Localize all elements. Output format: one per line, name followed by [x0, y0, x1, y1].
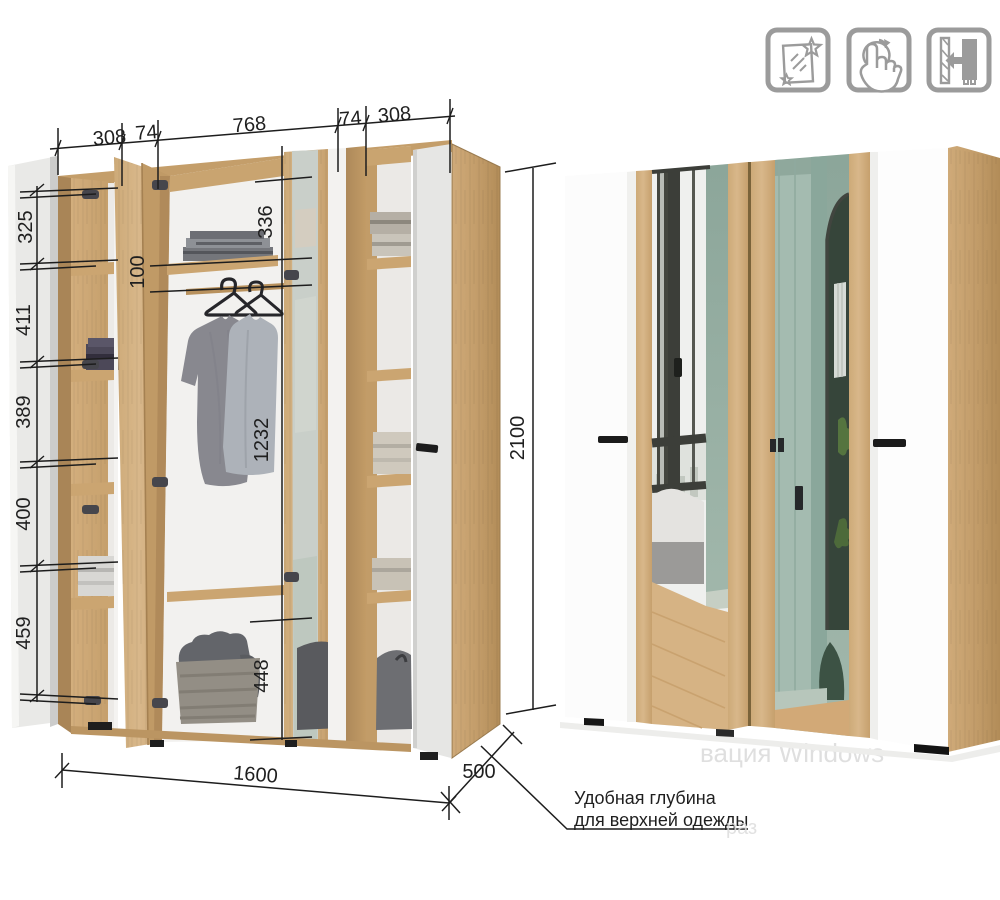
svg-text:411: 411	[13, 304, 35, 336]
svg-text:448: 448	[251, 659, 273, 692]
svg-text:1232: 1232	[251, 418, 273, 463]
svg-text:Удобная глубина: Удобная глубина	[574, 788, 717, 808]
svg-text:389: 389	[13, 395, 35, 428]
svg-text:400: 400	[13, 497, 35, 530]
svg-text:1600: 1600	[232, 762, 278, 788]
svg-text:308: 308	[92, 126, 127, 151]
svg-text:500: 500	[462, 761, 495, 783]
svg-text:459: 459	[13, 616, 35, 649]
svg-text:для верхней одежды: для верхней одежды	[574, 810, 748, 830]
svg-text:308: 308	[377, 103, 412, 128]
svg-text:раз: раз	[726, 817, 757, 839]
svg-text:74: 74	[339, 107, 363, 131]
svg-text:2100: 2100	[507, 416, 529, 461]
svg-text:768: 768	[232, 113, 267, 138]
svg-text:74: 74	[135, 121, 159, 145]
svg-text:336: 336	[255, 205, 277, 238]
svg-text:325: 325	[15, 210, 37, 243]
svg-text:100: 100	[127, 255, 149, 288]
